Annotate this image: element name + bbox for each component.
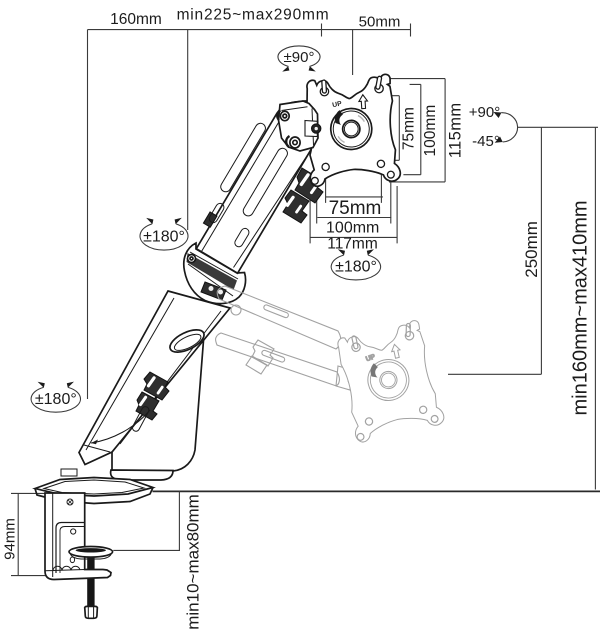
svg-text:115mm: 115mm [447, 103, 465, 159]
svg-text:±180°: ±180° [335, 259, 377, 276]
svg-text:min160mm~max410mm: min160mm~max410mm [569, 200, 591, 415]
svg-text:160mm: 160mm [110, 11, 162, 28]
svg-text:117mm: 117mm [327, 236, 378, 253]
svg-text:75mm: 75mm [329, 198, 382, 219]
svg-text:+90°: +90° [469, 104, 500, 121]
svg-text:250mm: 250mm [522, 221, 541, 278]
svg-text:±180°: ±180° [35, 391, 77, 408]
svg-text:75mm: 75mm [401, 107, 418, 150]
svg-text:min10~max80mm: min10~max80mm [184, 494, 203, 630]
svg-text:50mm: 50mm [359, 14, 401, 31]
svg-text:100mm: 100mm [422, 105, 439, 157]
svg-text:100mm: 100mm [326, 220, 379, 237]
svg-text:±90°: ±90° [284, 49, 315, 66]
svg-text:94mm: 94mm [2, 518, 19, 560]
svg-text:-45°: -45° [472, 133, 500, 150]
svg-text:±180°: ±180° [143, 229, 185, 246]
svg-text:min225~max290mm: min225~max290mm [177, 7, 330, 24]
